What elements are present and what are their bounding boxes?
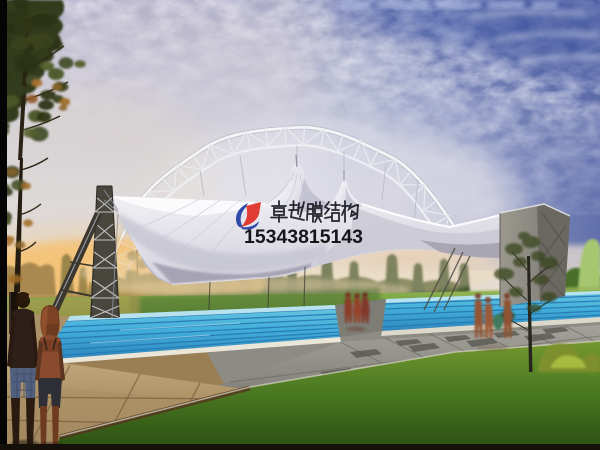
svg-text:15343815143: 15343815143 — [244, 226, 363, 248]
